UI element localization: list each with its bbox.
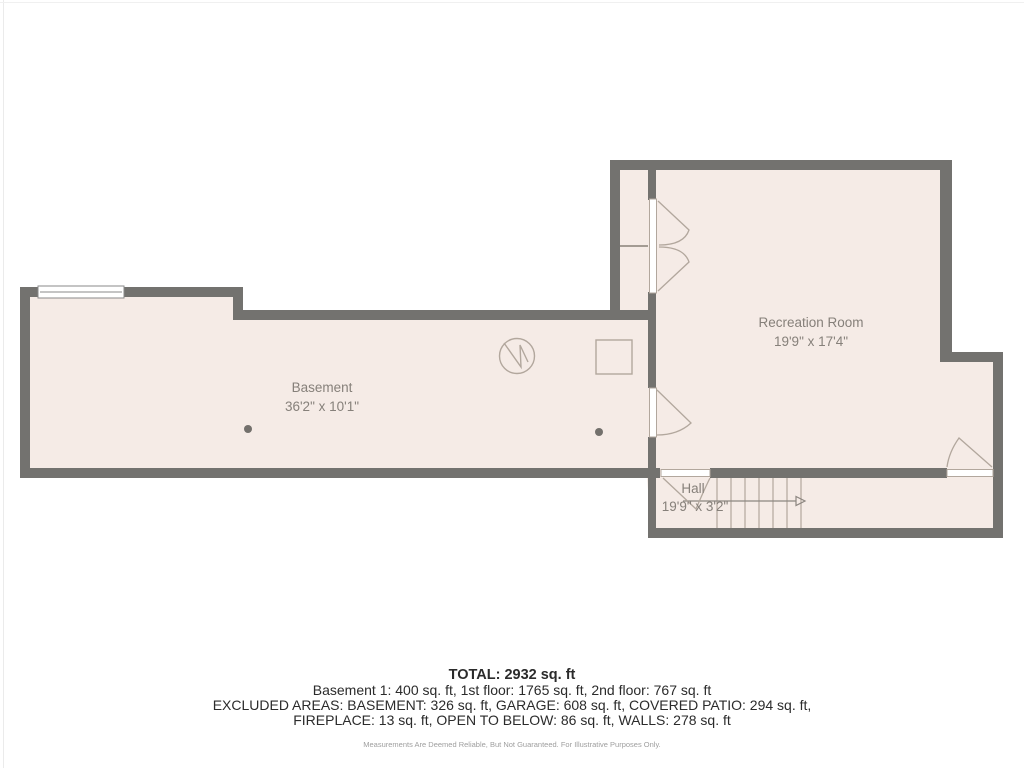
window-symbol — [38, 286, 124, 298]
basement-floor-plan: Basement 36'2" x 10'1" Recreation Room 1… — [0, 0, 1024, 768]
support-column-dot — [595, 428, 603, 436]
room-label-recreation-room: Recreation Room — [758, 315, 863, 330]
area-summary: TOTAL: 2932 sq. ft Basement 1: 400 sq. f… — [0, 668, 1024, 752]
room-label-hall: Hall — [681, 481, 704, 496]
double-door-jamb — [650, 199, 657, 293]
hall-door-jamb — [661, 470, 710, 477]
basement-door-jamb — [650, 388, 657, 437]
room-dimensions-hall: 19'9" x 3'2" — [662, 499, 729, 514]
disclaimer-text: Measurements Are Deemed Reliable, But No… — [0, 737, 1024, 752]
room-label-basement: Basement — [292, 380, 353, 395]
room-dimensions-recreation-room: 19'9" x 17'4" — [774, 334, 848, 349]
excluded-areas-text-line2: FIREPLACE: 13 sq. ft, OPEN TO BELOW: 86 … — [0, 713, 1024, 728]
floor-plan-page: Basement 36'2" x 10'1" Recreation Room 1… — [0, 0, 1024, 768]
total-area-text: TOTAL: 2932 sq. ft — [0, 668, 1024, 683]
support-column-dot — [244, 425, 252, 433]
floor-breakdown-text: Basement 1: 400 sq. ft, 1st floor: 1765 … — [0, 683, 1024, 698]
room-dimensions-basement: 36'2" x 10'1" — [285, 399, 359, 414]
stair-door-jamb — [947, 470, 993, 477]
excluded-areas-text-line1: EXCLUDED AREAS: BASEMENT: 326 sq. ft, GA… — [0, 698, 1024, 713]
floor-areas — [30, 168, 998, 533]
